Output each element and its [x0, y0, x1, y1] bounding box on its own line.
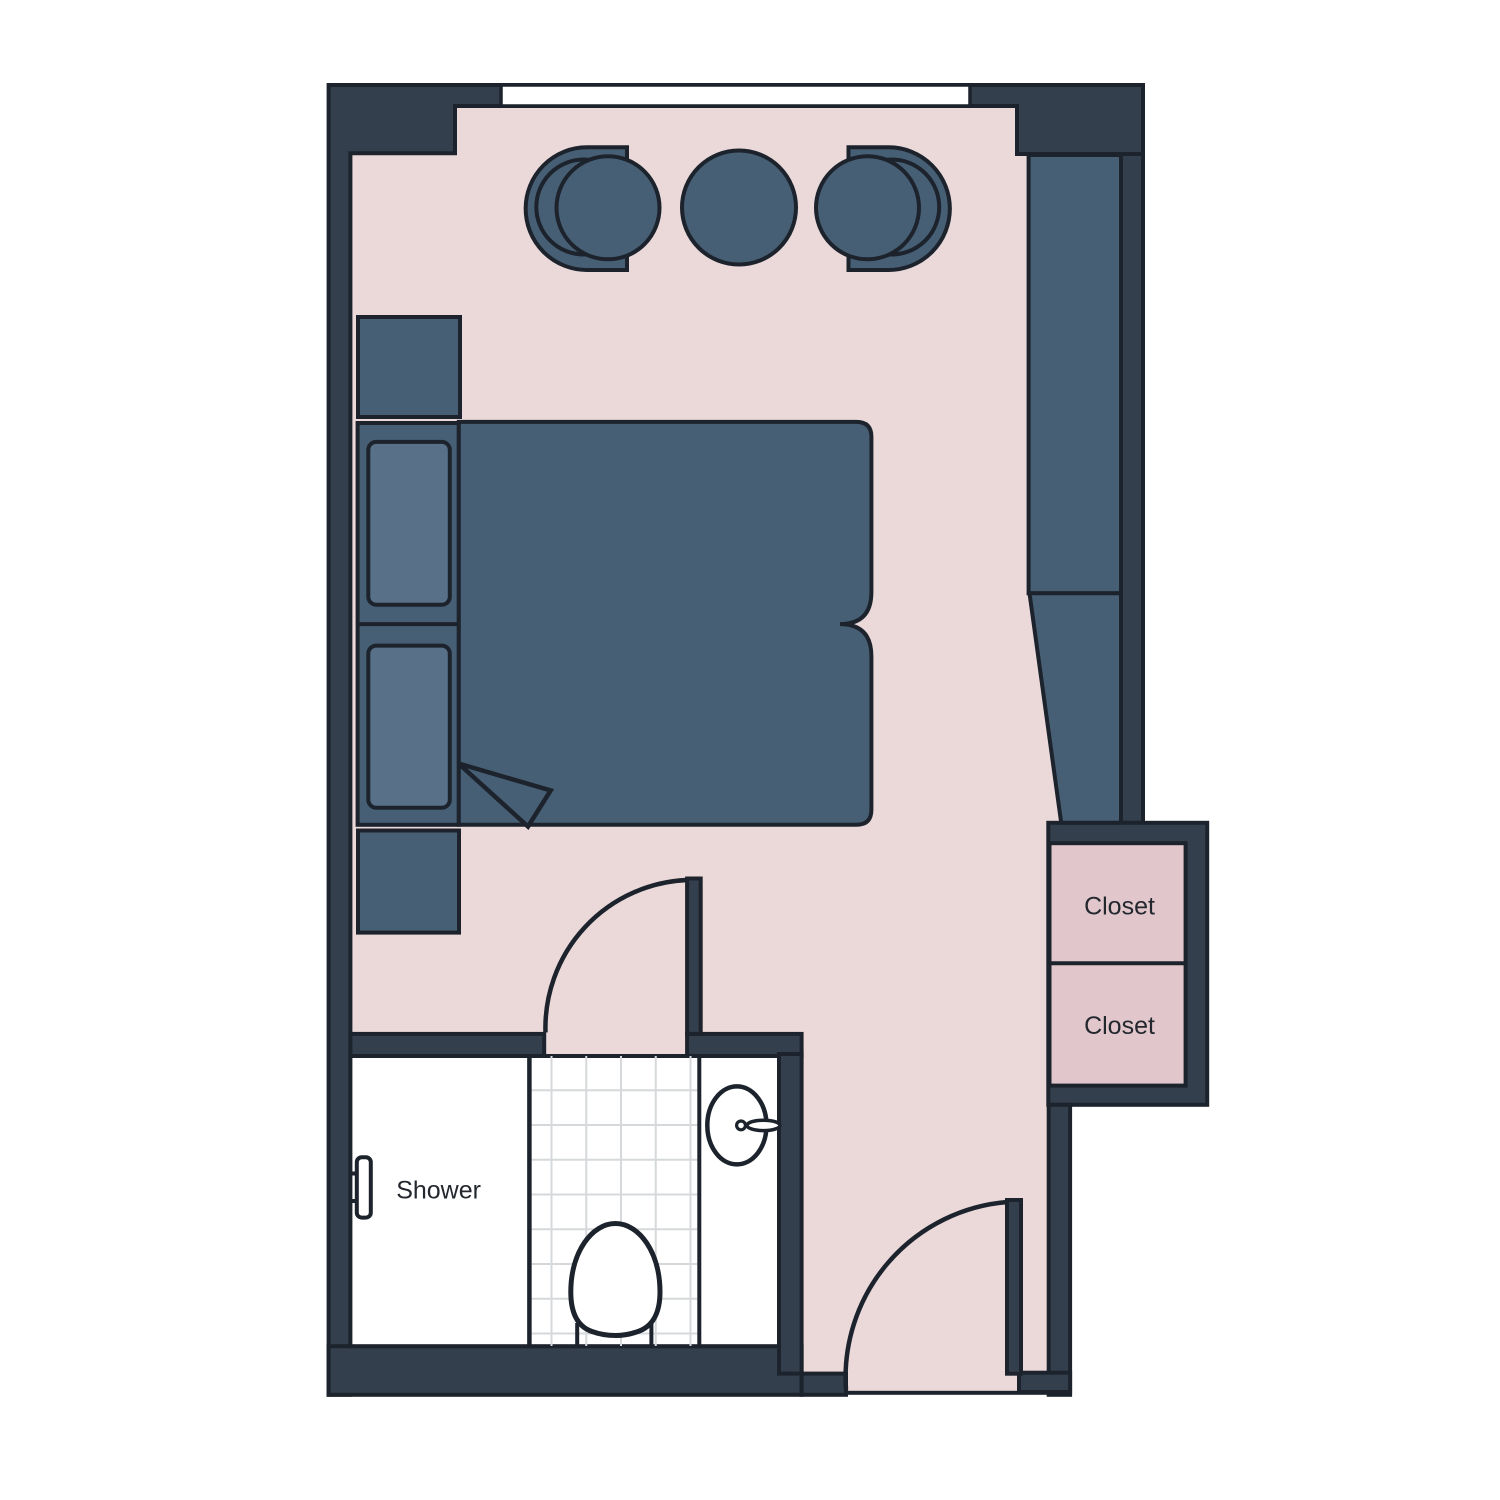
svg-text:Closet: Closet: [1084, 1012, 1155, 1040]
svg-text:Shower: Shower: [396, 1177, 481, 1205]
svg-text:Closet: Closet: [1084, 892, 1155, 920]
